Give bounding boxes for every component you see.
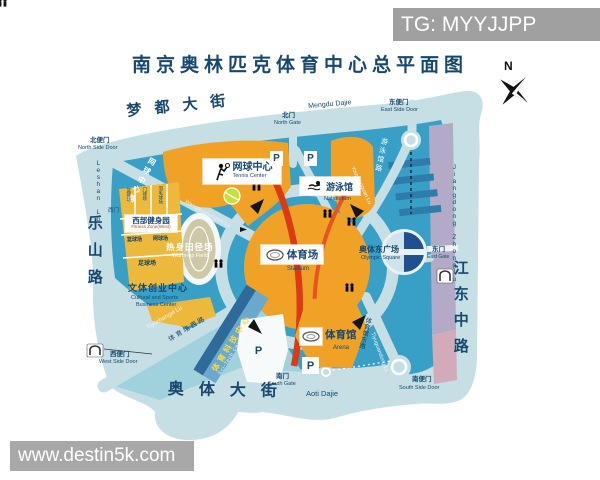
stadium-name: 体育场	[287, 247, 319, 262]
olympic-square-name: 奥体东广场	[359, 246, 399, 254]
court-football: 足球场	[138, 261, 156, 267]
tennis-player-icon	[212, 162, 230, 182]
court-small-2: 网球场	[153, 237, 168, 242]
gate-north-side: 北便门	[90, 138, 110, 145]
court-strip-2: 门球场	[142, 187, 147, 201]
arena-name-en: Arena	[333, 345, 349, 351]
warmup-field-name: 热身田径场	[166, 243, 214, 252]
business-center-name: 文体创业中心	[128, 284, 188, 293]
natatorium-name: 游泳馆	[326, 180, 353, 193]
top-watermark: TG: MYYJJPP	[393, 8, 600, 41]
business-center-name-en2: Business Center	[136, 303, 176, 309]
gate-west-side-en: West Side Door	[99, 360, 137, 366]
stadium-icon	[266, 249, 284, 261]
gate-east-side: 东便门	[389, 100, 409, 107]
business-center-name-en1: Cultural and Sports	[131, 296, 178, 302]
page-title: 南京奥林匹克体育中心总平面图	[0, 50, 600, 77]
arena-icon	[302, 331, 320, 342]
gate-west-side: 西便门	[110, 352, 130, 359]
bottom-watermark: www.destin5k.com	[10, 441, 194, 471]
natatorium-name-en: Natatorium	[324, 197, 351, 203]
street-jiangdong: 江东中路	[452, 260, 468, 364]
court-small-1: 篮球场	[127, 238, 142, 243]
gate-south-en: South Gate	[268, 382, 296, 388]
gate-south-side-en: South Side Door	[399, 386, 439, 392]
arena-icon-box	[300, 328, 322, 345]
map-screenshot: TG: MYYJJPP www.destin5k.com 南京奥林匹克体育中心总…	[0, 0, 600, 480]
parking-p-south: P	[302, 357, 319, 374]
gate-east: 东门	[432, 247, 445, 254]
arena-name: 体育馆	[325, 330, 357, 341]
parking-p-north2: P	[304, 151, 317, 166]
parking-p-north1: P	[270, 151, 283, 166]
gate-south-side: 南便门	[412, 377, 432, 384]
street-leshan-en: Leshan Lu	[94, 160, 101, 223]
fitness-zone-name-en: Fitness Zone(West)	[131, 225, 170, 230]
swimmer-icon	[307, 180, 323, 192]
pedestrian-icons	[0, 0, 7, 7]
gate-east-side-en: East Side Door	[381, 108, 418, 114]
court-strip-3: 羽毛球场	[158, 186, 163, 204]
street-leshan: 乐山路	[86, 215, 102, 296]
court-strip-1: 篮球场	[126, 188, 131, 202]
fitness-zone-label: 西部健身园 Fitness Zone(West)	[125, 215, 177, 232]
street-aoti-en: Aoti Dajie	[306, 390, 338, 398]
gate-south: 南门	[276, 374, 289, 381]
olympic-square-name-en: Olympic Square	[361, 256, 400, 262]
stadium-label: 体育场	[261, 245, 323, 264]
gate-north-side-en: North Side Door	[78, 146, 117, 152]
stadium-name-en: Stadium	[287, 266, 309, 272]
gate-north-en: North Gate	[274, 121, 301, 127]
gate-north: 北门	[282, 113, 295, 120]
gate-west: 西门	[108, 209, 119, 215]
tennis-center-name-en: Tennis Center	[233, 174, 267, 180]
tennis-ball-icon	[224, 188, 240, 204]
warmup-field-name-en: Warm-up Field	[172, 254, 208, 260]
natatorium-label: 游泳馆	[300, 177, 360, 195]
parking-p-southwest: P	[251, 343, 266, 359]
gate-east-en: East Gate	[427, 255, 449, 260]
